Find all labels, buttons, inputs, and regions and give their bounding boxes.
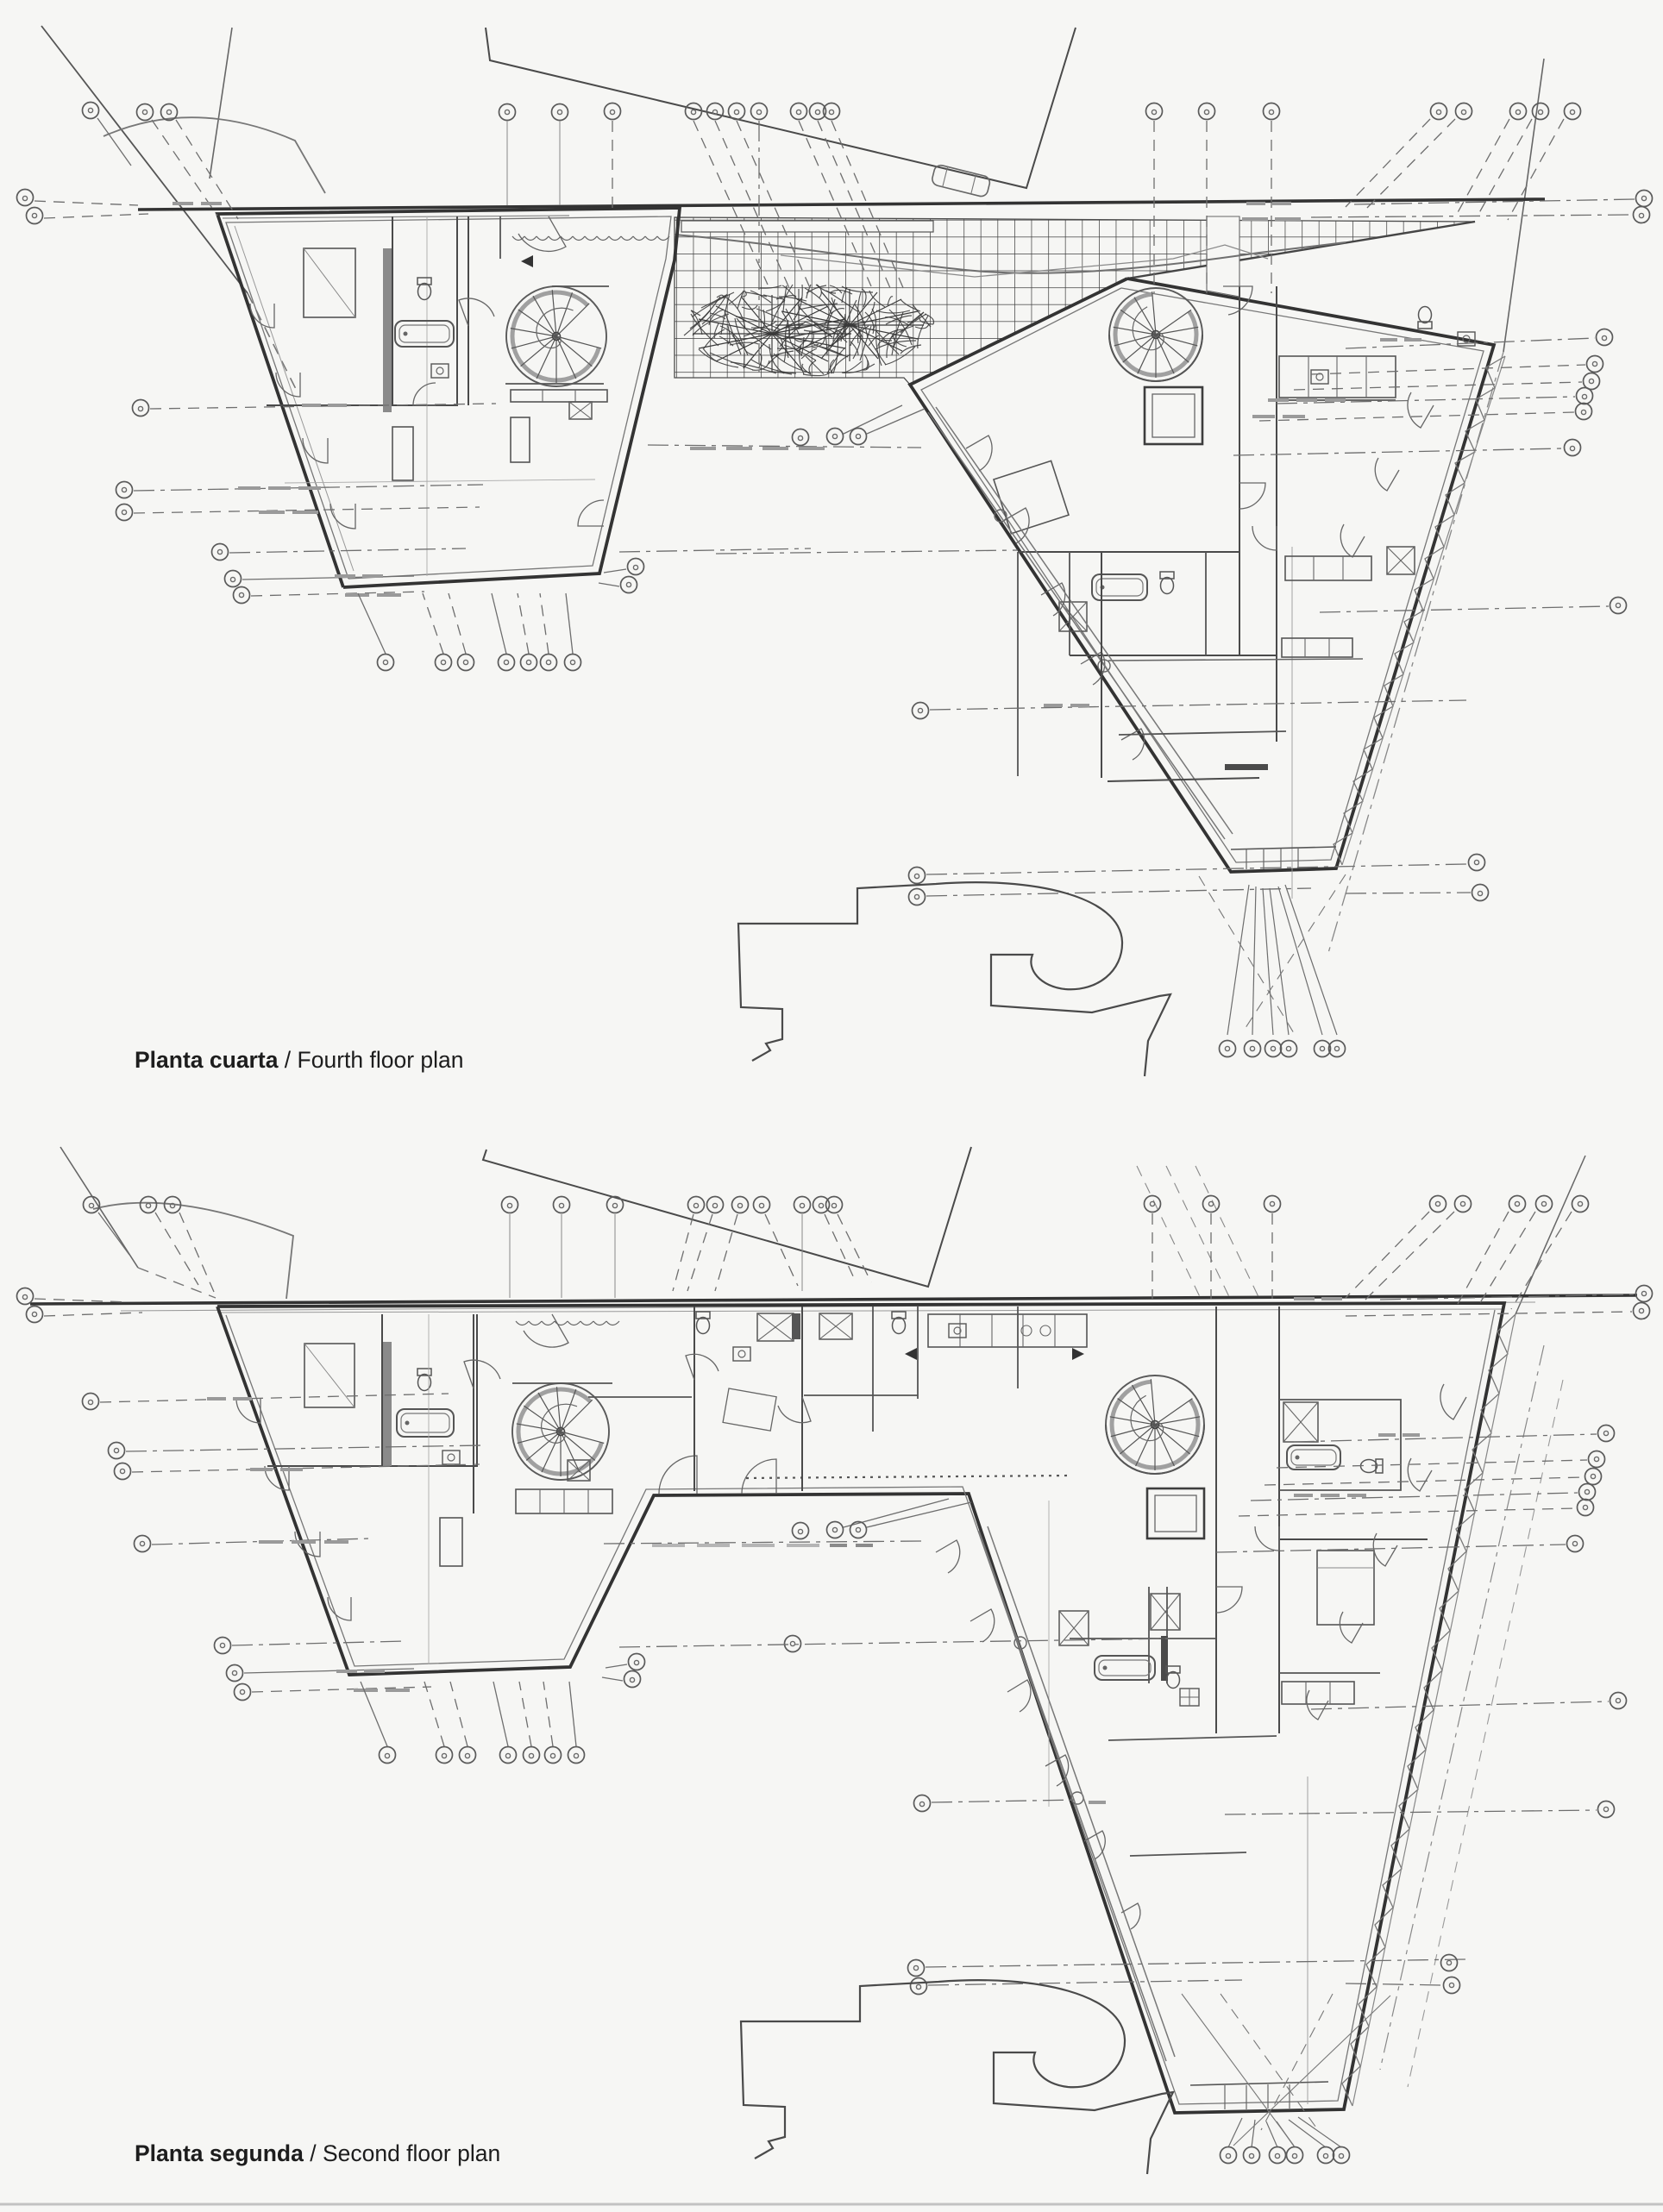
svg-text:Planta cuarta / Fourth floor p: Planta cuarta / Fourth floor plan [135,1047,464,1073]
svg-text:Planta segunda / Second floor: Planta segunda / Second floor plan [135,2140,500,2166]
